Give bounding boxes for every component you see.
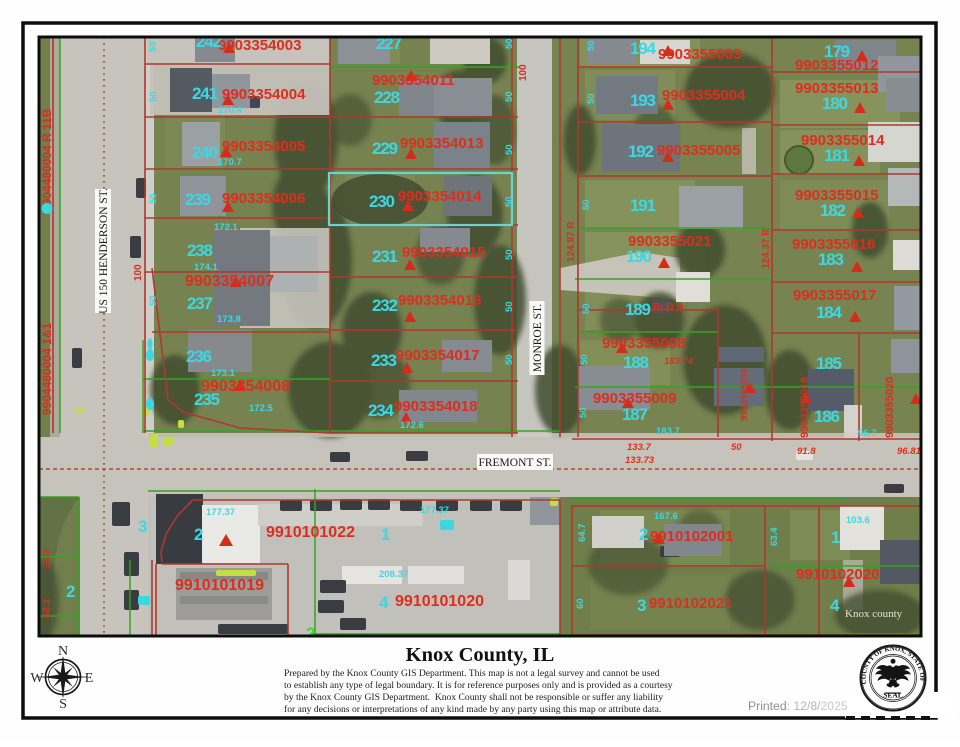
- svg-text:W: W: [30, 671, 44, 686]
- svg-text:E: E: [85, 671, 94, 686]
- svg-text:Knox County, IL: Knox County, IL: [406, 644, 555, 666]
- svg-text:S: S: [59, 697, 67, 712]
- svg-text:SEAL: SEAL: [883, 691, 903, 700]
- svg-text:for any decisions or interpret: for any decisions or interpretations of …: [284, 704, 661, 715]
- svg-text:Prepared by the Knox County GI: Prepared by the Knox County GIS Departme…: [284, 668, 660, 679]
- svg-text:to establish any type of legal: to establish any type of legal boundary.…: [284, 680, 673, 691]
- svg-text:Printed: 12/8/2025: Printed: 12/8/2025: [748, 699, 848, 713]
- svg-text:by the Knox County GIS Departm: by the Knox County GIS Department. Knox …: [284, 692, 663, 703]
